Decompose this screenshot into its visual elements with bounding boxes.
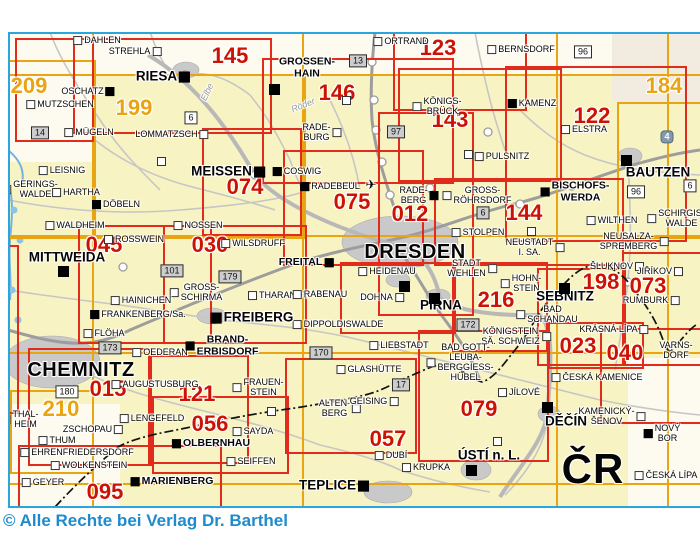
place-name: GERINGS- WALDE — [13, 180, 58, 200]
place-name: STOLPEN — [463, 228, 505, 238]
place-label: DRESDEN — [364, 241, 465, 263]
town-marker-icon — [527, 227, 536, 236]
town-marker-icon — [104, 235, 113, 244]
place-label: JÍLOVÉ — [498, 388, 540, 398]
place-name: DOHNA — [360, 293, 393, 303]
place-label: JIŘÍKOV — [637, 267, 683, 277]
place-name: WILTHEN — [598, 216, 638, 226]
place-label: WOLKENSTEIN — [51, 461, 128, 471]
place-label: GERINGS- WALDE — [2, 180, 58, 200]
place-label: COSWIG — [273, 167, 322, 177]
place-name: STREHLA — [109, 47, 151, 57]
place-label: ORTRAND — [373, 37, 428, 47]
place-label: PIRNA — [420, 299, 462, 314]
place-label: LENGEFELD — [120, 414, 185, 424]
place-label: VARNS- DORF — [659, 341, 692, 361]
place-label: ÚSTÍ n. L. — [458, 449, 520, 464]
place-label: NEUSALZA- SPREMBERG — [600, 232, 669, 252]
place-name: COSWIG — [284, 167, 322, 177]
place-label: NOVÝ BOR — [644, 424, 681, 444]
place-name: GEYER — [33, 478, 65, 488]
place-label: RIESA — [136, 70, 190, 85]
place-name: ČESKÁ KAMENICE — [562, 373, 642, 383]
city-marker-icon — [542, 402, 553, 413]
place-name: ZSCHOPAU — [63, 425, 112, 435]
place-label: ČESKÁ LÍPA — [635, 471, 698, 481]
place-name: KÖNIGS- BRÜCK — [423, 97, 461, 117]
place-name: BAD GOTT- LEUBA- BERGGIESS- HÜBEL — [437, 343, 493, 383]
place-label: DĚČÍN — [545, 415, 587, 430]
place-name: WOLKENSTEIN — [62, 461, 128, 471]
place-name: HARTHA — [63, 188, 100, 198]
place-name: ALTEN- BERG — [319, 399, 350, 419]
town-marker-icon — [221, 239, 230, 248]
town-marker-icon — [342, 96, 351, 105]
road-number-badge: 180 — [55, 385, 78, 398]
place-name: GEISING — [350, 397, 388, 407]
town-marker-icon — [120, 414, 129, 423]
place-name: ÚSTÍ n. L. — [458, 449, 520, 464]
town-marker-icon — [22, 478, 31, 487]
town-marker-icon — [475, 152, 484, 161]
road-number-badge: 6 — [184, 111, 197, 124]
road-number-badge: 97 — [387, 125, 405, 138]
city-marker-icon — [430, 192, 439, 201]
place-label: RADEBEUL — [300, 182, 360, 192]
place-name: AUGUSTUSBURG — [122, 380, 198, 390]
place-name: RIESA — [136, 70, 177, 85]
place-name: DUBÍ — [386, 451, 408, 461]
place-label: FRAUEN- STEIN — [233, 378, 284, 398]
place-name: THUM — [50, 436, 76, 446]
road-number-badge: 6 — [683, 179, 696, 192]
place-name: GROSSEN- HAIN — [279, 56, 335, 79]
city-marker-icon — [131, 477, 140, 486]
place-label: FLÖHA — [83, 329, 124, 339]
place-name: BISCHOFS- WERDA — [552, 180, 610, 203]
place-name: BAD SCHANDAU — [527, 305, 578, 325]
place-label: OLBERNHAU — [172, 438, 250, 450]
town-marker-icon — [647, 215, 656, 224]
place-name: NOVÝ BOR — [655, 424, 681, 444]
airport-icon: ✈ — [366, 177, 377, 193]
map-index-page: ElbeRöder1451231461431221842091990740750… — [0, 0, 700, 560]
road-number-badge: 172 — [456, 318, 479, 331]
town-marker-icon — [373, 37, 382, 46]
place-label: FRANKENBERG/Sa. — [90, 310, 186, 320]
place-name: RADE- BERG — [399, 186, 427, 206]
town-marker-icon — [412, 103, 421, 112]
town-marker-icon — [83, 329, 92, 338]
town-marker-icon — [73, 36, 82, 45]
city-marker-icon — [358, 481, 369, 492]
town-marker-icon — [402, 463, 411, 472]
place-name: GLASHÜTTE — [347, 365, 401, 375]
city-marker-icon — [172, 439, 181, 448]
place-label: KAMENICKÝ- ŠENOV — [578, 407, 645, 427]
place-label: DÖBELN — [92, 200, 140, 210]
town-marker-icon — [674, 267, 683, 276]
city-marker-icon — [644, 430, 653, 439]
margin-left — [0, 0, 8, 560]
place-label: TEPLICE — [299, 479, 369, 494]
place-label: OSCHATZ — [61, 87, 114, 97]
city-marker-icon — [90, 310, 99, 319]
town-marker-icon — [375, 451, 384, 460]
place-name: OEDERAN — [143, 348, 188, 358]
town-marker-icon — [51, 461, 60, 470]
town-marker-icon — [336, 365, 345, 374]
city-marker-icon — [179, 72, 190, 83]
town-marker-icon — [114, 425, 123, 434]
place-name: DIPPOLDISWALDE — [304, 320, 384, 330]
town-marker-icon — [64, 128, 73, 137]
place-name: LEISNIG — [50, 166, 86, 176]
place-name: SAYDA — [244, 427, 274, 437]
map-frame-top — [8, 32, 700, 34]
town-marker-icon — [111, 296, 120, 305]
place-label: THUM — [39, 436, 76, 446]
place-label: ČESKÁ KAMENICE — [551, 373, 642, 383]
city-marker-icon — [541, 188, 550, 197]
place-name: VARNS- DORF — [659, 341, 692, 361]
town-marker-icon — [464, 150, 473, 159]
road-number-badge: 173 — [98, 341, 121, 354]
place-name: MEISSEN — [191, 165, 252, 180]
road-number-badge: 14 — [31, 126, 49, 139]
place-label: RADE- BERG — [399, 186, 438, 206]
town-marker-icon — [233, 384, 242, 393]
town-marker-icon — [267, 407, 276, 416]
place-label: BRAND- ERBISDORF — [186, 334, 259, 357]
place-label: ROSSWEIN — [104, 235, 164, 245]
place-label: ČR — [562, 446, 625, 492]
place-label: BERNSDORF — [487, 45, 555, 55]
town-marker-icon — [516, 311, 525, 320]
place-name: FRANKENBERG/Sa. — [101, 310, 186, 320]
place-name: KRUPKA — [413, 463, 450, 473]
place-name: TEPLICE — [299, 479, 356, 494]
place-name: JÍLOVÉ — [509, 388, 540, 398]
place-label: BAUTZEN — [626, 166, 691, 181]
town-marker-icon — [426, 359, 435, 368]
place-label: NOSSEN — [173, 221, 222, 231]
place-name: ŠLUKNOV — [590, 262, 633, 272]
place-label: FREIBERG — [211, 311, 294, 326]
place-label: AUGUSTUSBURG — [111, 380, 198, 390]
place-name: KAMENZ — [519, 99, 557, 109]
place-label: KÖNIGS- BRÜCK — [412, 97, 461, 117]
place-label: HEIDENAU — [358, 267, 416, 277]
place-name: MARIENBERG — [142, 476, 214, 488]
town-marker-icon — [555, 244, 564, 253]
place-label: HARTHA — [52, 188, 100, 198]
place-name: FRAUEN- STEIN — [244, 378, 284, 398]
place-label: BISCHOFS- WERDA — [541, 180, 610, 203]
town-marker-icon — [659, 238, 668, 247]
place-name: NEUSALZA- SPREMBERG — [600, 232, 658, 252]
place-label: STREHLA — [109, 47, 162, 57]
place-name: WILSDRUFF — [232, 239, 285, 249]
place-label: RADE- BURG — [302, 123, 341, 143]
place-label: LEISNIG — [39, 166, 86, 176]
city-marker-icon — [92, 200, 101, 209]
city-marker-icon — [621, 155, 632, 166]
town-marker-icon — [173, 221, 182, 230]
city-marker-icon — [254, 167, 265, 178]
sheet-number: 056 — [192, 411, 229, 437]
place-label: MITTWEIDA — [29, 251, 106, 266]
place-name: DÖBELN — [103, 200, 140, 210]
place-label: SCHIRGIS- WALDE — [647, 209, 700, 229]
road-number-badge: 6 — [476, 206, 489, 219]
place-label: DOHNA — [360, 293, 404, 303]
place-name: LOMMATZSCH — [135, 130, 197, 140]
sheet-number: 057 — [370, 426, 407, 452]
town-marker-icon — [389, 397, 398, 406]
town-marker-icon — [233, 427, 242, 436]
place-label: KRUPKA — [402, 463, 450, 473]
city-marker-icon — [559, 283, 570, 294]
city-marker-icon — [508, 99, 517, 108]
sheet-number: 145 — [212, 43, 249, 69]
town-marker-icon — [293, 290, 302, 299]
place-label: GROSS- SCHIRMA — [170, 283, 223, 303]
town-marker-icon — [551, 373, 560, 382]
place-label: WILSDRUFF — [221, 239, 285, 249]
place-name: RABENAU — [304, 290, 348, 300]
sheet-number: 210 — [43, 396, 80, 422]
place-label: GROSS- RÖHRSDORF — [443, 186, 512, 206]
city-marker-icon — [269, 84, 280, 95]
road-number-badge: 96 — [627, 185, 645, 198]
place-label: GROSSEN- HAIN — [279, 56, 335, 79]
town-marker-icon — [39, 166, 48, 175]
place-name: HEIDENAU — [369, 267, 416, 277]
town-marker-icon — [152, 47, 161, 56]
place-name: BRAND- ERBISDORF — [197, 334, 259, 357]
place-label: LIEBSTADT — [369, 341, 428, 351]
place-name: MUTZSCHEN — [37, 100, 94, 110]
place-name: ROSSWEIN — [115, 235, 164, 245]
city-marker-icon — [429, 293, 440, 304]
town-marker-icon — [39, 436, 48, 445]
city-marker-icon — [211, 313, 222, 324]
place-label: ŠLUKNOV — [590, 262, 644, 272]
road-number-badge: 4 — [660, 130, 673, 143]
map-canvas: ElbeRöder1451231461431221842091990740750… — [0, 0, 700, 560]
town-marker-icon — [587, 216, 596, 225]
town-marker-icon — [293, 320, 302, 329]
town-marker-icon — [52, 188, 61, 197]
map-frame-bottom — [8, 506, 700, 508]
place-name: GROSS- SCHIRMA — [181, 283, 223, 303]
town-marker-icon — [200, 130, 209, 139]
place-name: LENGEFELD — [131, 414, 185, 424]
town-marker-icon — [542, 333, 551, 342]
town-marker-icon — [443, 192, 452, 201]
place-name: GROSS- RÖHRSDORF — [454, 186, 512, 206]
place-name: NEUSTADT I. SA. — [506, 238, 554, 258]
town-marker-icon — [635, 471, 644, 480]
sheet-number: 199 — [116, 95, 153, 121]
place-name: KRÁSNÁ LÍPA — [579, 325, 637, 335]
road-number-badge: 96 — [574, 45, 592, 58]
town-marker-icon — [498, 388, 507, 397]
place-name: DRESDEN — [364, 241, 465, 263]
city-marker-icon — [399, 281, 410, 292]
sheet-number: 209 — [11, 73, 48, 99]
place-name: FREITAL — [279, 257, 323, 269]
road-number-badge: 17 — [392, 378, 410, 391]
place-label: RABENAU — [293, 290, 348, 300]
place-label: LOMMATZSCH — [135, 130, 208, 140]
town-marker-icon — [369, 341, 378, 350]
city-marker-icon — [324, 258, 333, 267]
place-label: DAHLEN — [73, 36, 121, 46]
place-name: PIRNA — [420, 299, 462, 314]
place-label: ELSTRA — [561, 125, 607, 135]
place-label: KAMENZ — [508, 99, 557, 109]
place-label: MEISSEN — [191, 165, 265, 180]
city-marker-icon — [273, 167, 282, 176]
place-label: DUBÍ — [375, 451, 408, 461]
town-marker-icon — [452, 228, 461, 237]
city-marker-icon — [300, 182, 309, 191]
place-name: NOSSEN — [184, 221, 222, 231]
place-label: EHRENFRIEDERSDORF — [20, 448, 134, 458]
place-name: RUMBURK — [623, 296, 669, 306]
road-number-badge: 13 — [349, 54, 367, 67]
place-name: OLBERNHAU — [183, 438, 250, 450]
city-marker-icon — [106, 87, 115, 96]
town-marker-icon — [487, 45, 496, 54]
town-marker-icon — [45, 221, 54, 230]
place-label: MÜGELN — [64, 128, 114, 138]
place-label: KRÁSNÁ LÍPA — [579, 325, 648, 335]
sheet-number: 095 — [87, 479, 124, 505]
place-name: THAL- HEIM — [12, 410, 38, 430]
place-label: GLASHÜTTE — [336, 365, 401, 375]
place-name: WALDHEIM — [56, 221, 104, 231]
town-marker-icon — [132, 348, 141, 357]
place-name: SCHIRGIS- WALDE — [658, 209, 700, 229]
place-name: LIEBSTADT — [380, 341, 428, 351]
place-label: PULSNITZ — [475, 152, 530, 162]
place-name: ČR — [562, 446, 625, 492]
margin-top — [0, 0, 700, 32]
map-frame-left — [8, 32, 10, 508]
place-name: DĚČÍN — [545, 415, 587, 430]
town-marker-icon — [640, 325, 649, 334]
town-marker-icon — [20, 448, 29, 457]
town-marker-icon — [561, 125, 570, 134]
place-name: ELSTRA — [572, 125, 607, 135]
place-label: WILTHEN — [587, 216, 638, 226]
place-label: GEISING — [350, 397, 399, 407]
place-name: HAINICHEN — [122, 296, 172, 306]
road-number-badge: 179 — [218, 270, 241, 283]
road-number-badge: 170 — [309, 346, 332, 359]
town-marker-icon — [637, 413, 646, 422]
town-marker-icon — [395, 293, 404, 302]
place-label: NEUSTADT I. SA. — [506, 238, 565, 258]
town-marker-icon — [501, 280, 510, 289]
place-label: OEDERAN — [132, 348, 188, 358]
town-marker-icon — [111, 380, 120, 389]
place-label: RUMBURK — [623, 296, 680, 306]
place-name: CHEMNITZ — [27, 359, 134, 381]
city-marker-icon — [186, 342, 195, 351]
place-name: BAUTZEN — [626, 166, 691, 181]
place-label: BAD SCHANDAU — [516, 305, 578, 325]
copyright-text: © Alle Rechte bei Verlag Dr. Barthel — [3, 511, 288, 531]
place-name: MITTWEIDA — [29, 251, 106, 266]
city-marker-icon — [466, 465, 477, 476]
place-label: BAD GOTT- LEUBA- BERGGIESS- HÜBEL — [426, 343, 493, 383]
place-name: ČESKÁ LÍPA — [646, 471, 698, 481]
town-marker-icon — [157, 157, 166, 166]
sheet-number: 184 — [646, 73, 683, 99]
town-marker-icon — [26, 100, 35, 109]
place-name: PULSNITZ — [486, 152, 530, 162]
place-name: FLÖHA — [94, 329, 124, 339]
place-name: DAHLEN — [84, 36, 121, 46]
sheet-number: 023 — [560, 333, 597, 359]
place-label: FREITAL — [279, 257, 334, 269]
city-marker-icon — [58, 266, 69, 277]
place-label: SEIFFEN — [226, 457, 275, 467]
place-name: ORTRAND — [384, 37, 428, 47]
town-marker-icon — [226, 457, 235, 466]
place-name: EHRENFRIEDERSDORF — [31, 448, 134, 458]
sheet-number: 040 — [607, 340, 644, 366]
place-name: OSCHATZ — [61, 87, 103, 97]
place-label: MUTZSCHEN — [26, 100, 94, 110]
place-name: SEIFFEN — [237, 457, 275, 467]
town-marker-icon — [493, 437, 502, 446]
road-number-badge: 101 — [160, 264, 183, 277]
place-name: RADEBEUL — [311, 182, 360, 192]
town-marker-icon — [488, 265, 497, 274]
place-name: RADE- BURG — [302, 123, 330, 143]
town-marker-icon — [333, 129, 342, 138]
place-label: HAINICHEN — [111, 296, 172, 306]
place-label: DIPPOLDISWALDE — [293, 320, 384, 330]
place-name: FREIBERG — [224, 311, 294, 326]
place-name: JIŘÍKOV — [637, 267, 672, 277]
place-name: BERNSDORF — [498, 45, 555, 55]
town-marker-icon — [670, 296, 679, 305]
town-marker-icon — [248, 291, 257, 300]
town-marker-icon — [358, 267, 367, 276]
sheet-number: 079 — [461, 396, 498, 422]
place-label: MARIENBERG — [131, 476, 214, 488]
place-label: ZSCHOPAU — [63, 425, 123, 435]
place-label: CHEMNITZ — [27, 359, 134, 381]
place-name: MÜGELN — [75, 128, 114, 138]
place-label: WALDHEIM — [45, 221, 104, 231]
place-label: SAYDA — [233, 427, 274, 437]
place-label: STOLPEN — [452, 228, 505, 238]
place-label: GEYER — [22, 478, 65, 488]
